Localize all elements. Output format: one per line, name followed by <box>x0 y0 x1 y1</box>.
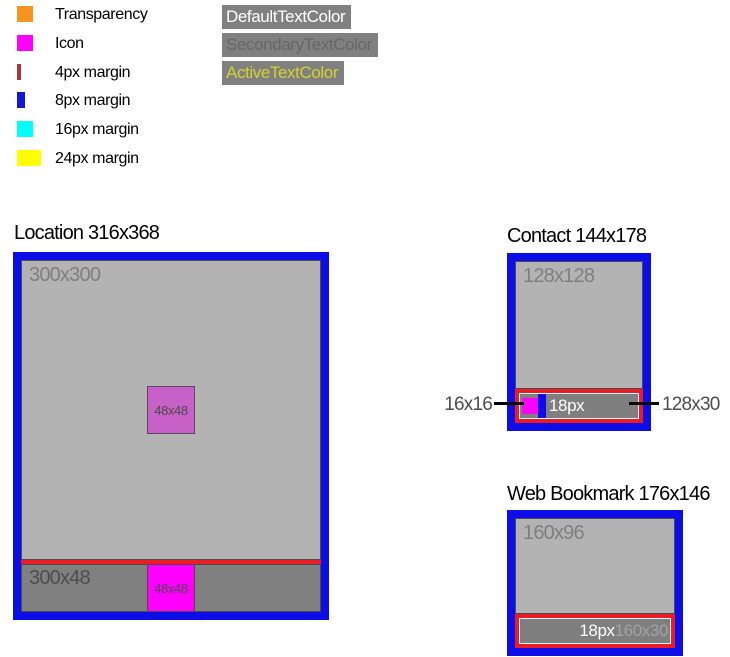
legend-label: 16px margin <box>55 121 139 138</box>
contact-bar-callout-label: 128x30 <box>662 395 720 414</box>
location-content-dim-label: 300x300 <box>29 264 100 287</box>
contact-content-dim-label: 128x128 <box>523 265 594 288</box>
location-card: 300x300 48x48 300x48 48x48 <box>13 252 329 620</box>
location-bar-dim-label: 300x48 <box>29 567 90 590</box>
legend-row-4px-margin: 4px margin <box>17 64 147 93</box>
legend-row-transparency: Transparency <box>17 6 147 35</box>
default-text-color-specimen: DefaultTextColor <box>222 5 351 29</box>
web-bookmark-bar-dim-label: 160x30 <box>615 621 668 641</box>
contact-content-area: 128x128 <box>515 261 643 389</box>
web-bookmark-content-area: 160x96 <box>515 518 675 614</box>
contact-16px-icon <box>522 398 538 414</box>
contact-title: Contact 144x178 <box>507 225 646 248</box>
legend-label: 4px margin <box>55 64 130 81</box>
margin-16px-swatch-icon <box>17 121 33 137</box>
web-bookmark-text-size-label: 18px <box>579 621 614 641</box>
contact-text-size-label: 18px <box>549 396 584 416</box>
legend-row-24px-margin: 24px margin <box>17 150 147 179</box>
margin-8px-swatch-icon <box>17 92 25 108</box>
active-text-color-specimen: ActiveTextColor <box>222 61 344 85</box>
contact-icon-callout-line <box>494 402 524 405</box>
design-spec-canvas: Transparency Icon 4px margin 8px margin … <box>0 0 730 657</box>
web-bookmark-content-dim-label: 160x96 <box>523 522 584 545</box>
web-bookmark-title: Web Bookmark 176x146 <box>507 483 710 506</box>
legend-label: Icon <box>55 35 84 52</box>
contact-label-bar: 18px <box>519 393 639 419</box>
legend-row-16px-margin: 16px margin <box>17 121 147 150</box>
margin-legend: Transparency Icon 4px margin 8px margin … <box>17 6 147 179</box>
legend-label: 24px margin <box>55 150 139 167</box>
contact-4px-margin-frame: 18px <box>515 389 643 423</box>
legend-row-icon: Icon <box>17 35 147 64</box>
margin-4px-swatch-icon <box>17 64 21 80</box>
legend-label: 8px margin <box>55 92 130 109</box>
secondary-text-color-specimen: SecondaryTextColor <box>222 33 378 57</box>
web-bookmark-card: 160x96 18px 160x30 <box>507 510 683 656</box>
legend-row-8px-margin: 8px margin <box>17 92 147 121</box>
location-bar-icon: 48x48 <box>147 564 195 612</box>
icon-swatch-icon <box>17 35 33 51</box>
web-bookmark-4px-margin-frame: 18px 160x30 <box>515 614 675 648</box>
contact-icon-callout-label: 16x16 <box>440 395 492 414</box>
contact-bar-callout-line <box>629 402 659 405</box>
margin-24px-swatch-icon <box>17 150 41 166</box>
location-title: Location 316x368 <box>14 222 159 245</box>
transparency-swatch-icon <box>17 6 33 22</box>
location-center-icon: 48x48 <box>147 386 195 434</box>
location-content-area: 300x300 48x48 <box>21 260 321 560</box>
legend-label: Transparency <box>55 6 147 23</box>
web-bookmark-label-bar: 18px 160x30 <box>519 618 671 644</box>
text-color-specimens: DefaultTextColor SecondaryTextColor Acti… <box>222 5 378 85</box>
location-bottom-bar: 300x48 48x48 <box>21 564 321 612</box>
contact-8px-margin-marker <box>538 394 546 418</box>
